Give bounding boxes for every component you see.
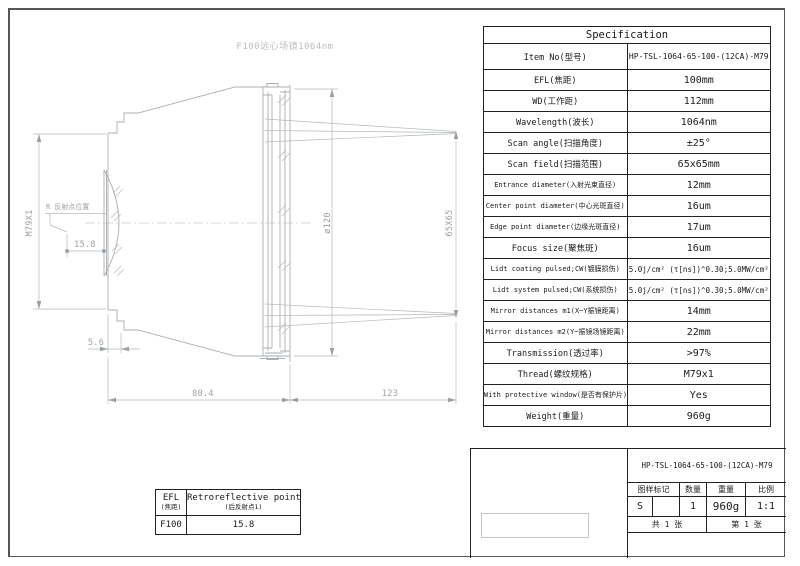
spec-value-cell: 5.0j/cm² (τ[ns])^0.30;5.0MW/cm²: [627, 259, 771, 280]
title-block-grid: HP-TSL-1064-65-100-(12CA)-M79 图样标记 数量 重量…: [627, 449, 787, 558]
dim-80-4: 80.4: [108, 357, 290, 404]
spec-label-cell: Thread(螺纹规格): [484, 364, 628, 385]
value-scale: 1:1: [746, 497, 786, 517]
spec-value-cell: 960g: [627, 406, 771, 427]
dim-15-8-label: 15.8: [74, 240, 96, 250]
total-sheets: 共 1 张: [628, 517, 707, 533]
dim-5-6: 5.6: [88, 314, 140, 353]
dim-123-label: 123: [382, 389, 398, 399]
header-weight: 重量: [707, 483, 746, 497]
efl-header-cell: EFL (焦距): [156, 490, 187, 516]
spec-value-cell: ±25°: [627, 133, 771, 154]
efl-header-en: EFL: [163, 493, 179, 503]
reflect-point-label: R 反射点位置: [45, 202, 107, 232]
retro-header-cn: (后反射点1): [187, 504, 300, 511]
spec-value-cell: 112mm: [627, 91, 771, 112]
value-quantity: 1: [680, 497, 707, 517]
lens-drawing: F100远心场镜1064nm: [0, 0, 480, 450]
retro-value-cell: 15.8: [187, 516, 301, 535]
datasheet-page: F100远心场镜1064nm: [0, 0, 800, 566]
spec-table-title: Specification: [484, 27, 771, 44]
spec-value-cell: 16um: [627, 238, 771, 259]
dim-m79x1: M79X1: [25, 134, 106, 309]
title-block-empty-row: [628, 533, 786, 557]
title-block: HP-TSL-1064-65-100-(12CA)-M79 图样标记 数量 重量…: [470, 448, 786, 558]
efl-header-cn: (焦距): [156, 504, 186, 511]
spec-value-cell: 12mm: [627, 175, 771, 196]
spec-value-cell: >97%: [627, 343, 771, 364]
value-drawing-mark: S: [628, 497, 653, 517]
drawing-title: F100远心场镜1064nm: [236, 40, 333, 52]
spec-value-cell: 5.0j/cm² (τ[ns])^0.30;5.0MW/cm²: [627, 280, 771, 301]
dim-dia120: ø120: [294, 89, 338, 356]
spec-label-cell: Scan field(扫描范围): [484, 154, 628, 175]
spec-label-cell: Edge point diameter(边缘光斑直径): [484, 217, 628, 238]
spec-value-cell: 16um: [627, 196, 771, 217]
scan-field-rays: [265, 119, 456, 327]
value-weight: 960g: [707, 497, 746, 517]
efl-value-cell: F100: [156, 516, 187, 535]
logo-placeholder-box: [481, 513, 589, 538]
dim-65x65: 65X65: [445, 131, 458, 318]
spec-value-cell: 14mm: [627, 301, 771, 322]
header-scale: 比例: [746, 483, 786, 497]
header-quantity: 数量: [680, 483, 707, 497]
efl-retro-table: EFL (焦距) Retroreflective point1 (后反射点1) …: [155, 489, 301, 535]
dim-123: 123: [290, 322, 456, 404]
spec-label-cell: Focus size(聚焦斑): [484, 238, 628, 259]
spec-label-cell: WD(工作距): [484, 91, 628, 112]
retro-header-en: Retroreflective point1: [187, 493, 301, 503]
spec-label-cell: Item No(型号): [484, 44, 628, 70]
spec-label-cell: Mirror distances m1(X~Y振镜距离): [484, 301, 628, 322]
body-outline: [108, 87, 263, 356]
spec-label-cell: Scan angle(扫描角度): [484, 133, 628, 154]
specification-table: Specification Item No(型号)HP-TSL-1064-65-…: [483, 26, 771, 427]
spec-value-cell: 22mm: [627, 322, 771, 343]
dim-thread-label: M79X1: [25, 209, 35, 236]
spec-value-cell: HP-TSL-1064-65-100-(12CA)-M79: [627, 44, 771, 70]
dim-80-4-label: 80.4: [192, 389, 214, 399]
spec-value-cell: 1064nm: [627, 112, 771, 133]
spec-label-cell: With protective window(是否有保护片): [484, 385, 628, 406]
spec-label-cell: Lidt system pulsed;CW(系统损伤): [484, 280, 628, 301]
retro-header-cell: Retroreflective point1 (后反射点1): [187, 490, 301, 516]
spec-value-cell: Yes: [627, 385, 771, 406]
spec-value-cell: 100mm: [627, 70, 771, 91]
reflect-label-text: R 反射点位置: [46, 202, 89, 211]
spec-label-cell: Entrance diameter(入射光束直径): [484, 175, 628, 196]
dim-dia120-label: ø120: [323, 212, 333, 234]
spec-label-cell: EFL(焦距): [484, 70, 628, 91]
spec-label-cell: Lidt coating pulsed;CW(镀膜损伤): [484, 259, 628, 280]
title-block-part-no: HP-TSL-1064-65-100-(12CA)-M79: [628, 449, 786, 483]
spec-value-cell: 17um: [627, 217, 771, 238]
spec-value-cell: 65x65mm: [627, 154, 771, 175]
spec-label-cell: Wavelength(波长): [484, 112, 628, 133]
dim-5-6-label: 5.6: [88, 338, 104, 348]
spec-label-cell: Center point diameter(中心光斑直径): [484, 196, 628, 217]
sheet-number: 第 1 张: [707, 517, 786, 533]
spec-label-cell: Weight(重量): [484, 406, 628, 427]
spec-label-cell: Mirror distances m2(Y~振镜场镜距离): [484, 322, 628, 343]
dim-65x65-label: 65X65: [445, 209, 455, 236]
spec-value-cell: M79x1: [627, 364, 771, 385]
header-drawing-mark: 图样标记: [628, 483, 680, 497]
spec-label-cell: Transmission(透过率): [484, 343, 628, 364]
value-mark-extra: [653, 497, 680, 517]
dim-15-8: 15.8: [65, 234, 105, 257]
